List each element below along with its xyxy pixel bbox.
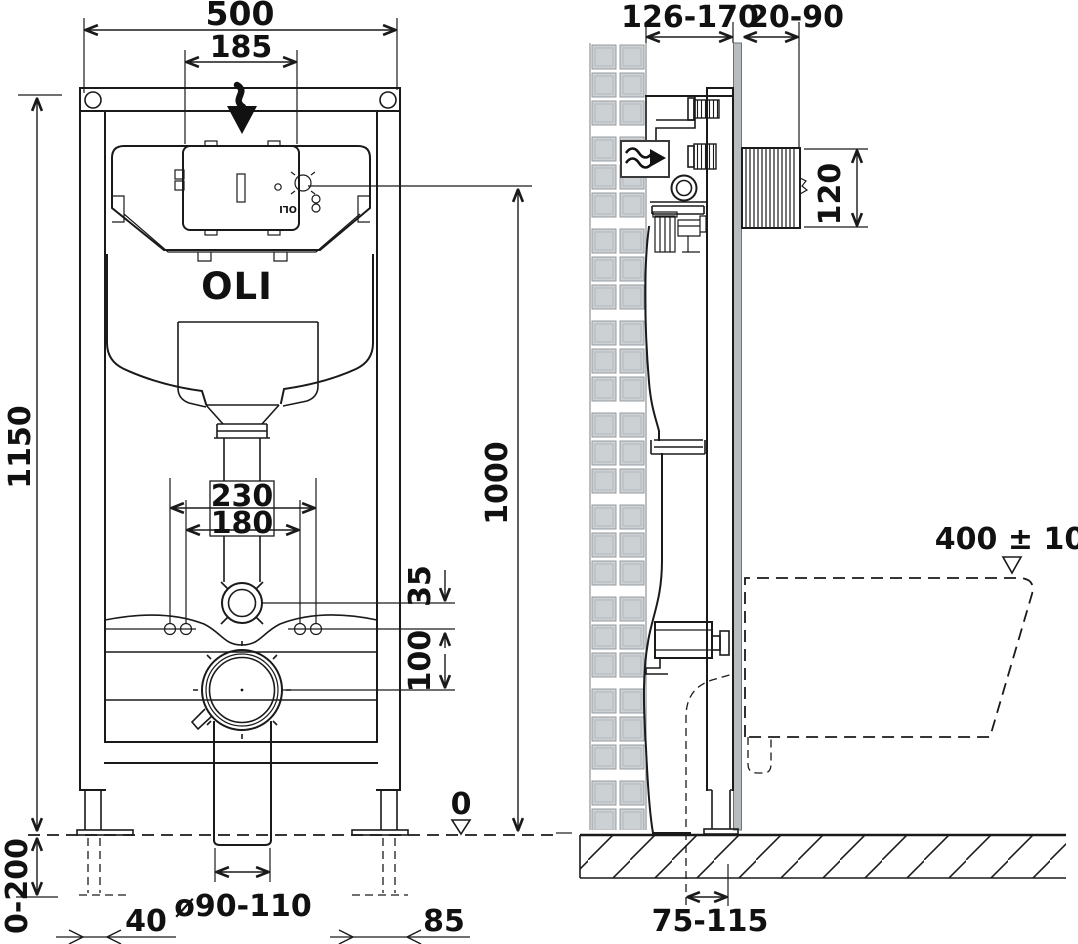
mounting-bracket [646,622,729,674]
floor-level-marker-icon: 0 [451,787,472,834]
installation-drawing: OLI OLI 230 180 [0,0,1078,944]
dim-right-leg-offset-label: 85 [423,904,465,939]
cistern-mechanism [650,176,706,253]
frame-outline [80,88,400,790]
dim-axis-height: 1000 [480,190,518,830]
plate-logo: OLI [279,203,297,214]
dim-left-leg-offset: 40 [56,904,176,944]
dim-frame-height-label: 1150 [3,405,38,489]
drawing-canvas: OLI OLI 230 180 [0,0,1078,944]
side-view: 400 ± 10 126-170 20-90 120 [556,0,1078,939]
dim-total-width-label: 500 [206,0,275,33]
dim-plate-depth: 20-90 [745,0,844,148]
flush-plate-bracket [112,146,370,261]
dim-leg-adjustment: 0-200 [0,838,58,934]
dim-frame-depth-label: 126-170 [621,0,759,35]
dim-leg-adjustment-label: 0-200 [0,838,35,934]
brand-logo: OLI [201,265,273,308]
dim-drain-wall-distance-label: 75-115 [652,904,769,939]
dim-axis-height-label: 1000 [480,441,515,525]
dim-left-leg-offset-label: 40 [125,904,167,939]
bowl-height-marker-icon: 400 ± 10 [935,522,1078,573]
finished-wall [734,43,742,830]
frame-rail-section [704,88,738,834]
water-supply-icon [621,141,669,177]
dim-plate-width-label: 185 [210,30,273,65]
front-view: OLI OLI 230 180 [0,0,556,944]
dim-spacing-inner-label: 180 [211,506,274,541]
cistern-section [644,227,733,840]
dim-flush-offset-label: 35 [403,565,438,607]
dim-plate-depth-label: 20-90 [748,0,844,35]
flush-plate-side [742,148,807,228]
dim-frame-depth: 126-170 [621,0,759,43]
dim-frame-height: 1150 [3,95,62,830]
dim-fixing-spacing: 230 180 [170,478,316,623]
flush-arrow-icon [227,85,257,134]
dim-drain-diameter-label: ø90-110 [174,889,311,924]
drain-pipe [214,722,271,845]
floor-slab [556,833,1066,878]
dim-right-leg-offset: 85 [330,904,470,944]
dim-drain-offset-label: 100 [403,630,438,693]
dim-drain-diameter: ø90-110 [174,848,311,924]
dim-plate-height-label: 120 [813,163,848,226]
adjustable-feet [77,790,408,895]
dim-bowl-height-label: 400 ± 10 [935,522,1078,557]
floor-level-label: 0 [451,787,472,822]
wc-bowl-outline [745,578,1033,773]
plate-clip-knob [291,172,315,194]
dim-plate-height: 120 [804,149,868,227]
